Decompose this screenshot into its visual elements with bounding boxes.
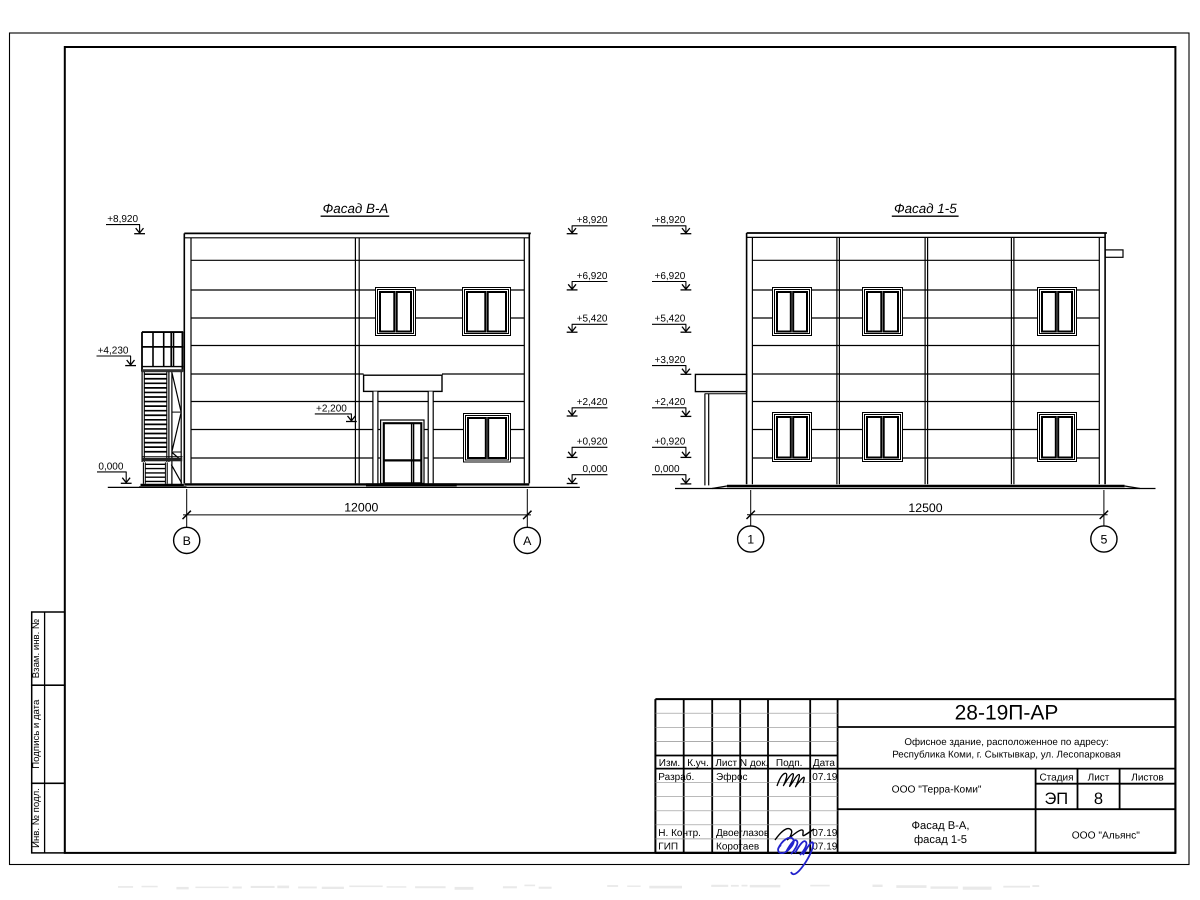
svg-text:Фасад В-А: Фасад В-А [323,201,389,216]
svg-text:1: 1 [747,532,754,546]
svg-text:фасад 1-5: фасад 1-5 [914,834,967,846]
svg-text:Лист: Лист [715,758,737,769]
svg-text:Взам. инв. №: Взам. инв. № [31,619,42,678]
svg-text:07.19: 07.19 [812,828,837,839]
svg-text:+2,200: +2,200 [316,403,347,414]
svg-text:Фасад В-А,: Фасад В-А, [912,820,970,832]
svg-text:+5,420: +5,420 [655,314,686,325]
svg-text:Двоеглазов: Двоеглазов [716,828,769,839]
svg-text:8: 8 [1094,790,1103,808]
svg-text:0,000: 0,000 [582,464,607,475]
svg-text:А: А [523,534,532,548]
svg-text:12000: 12000 [344,501,378,515]
svg-text:Подпись и дата: Подпись и дата [31,699,42,769]
svg-text:+6,920: +6,920 [655,271,686,282]
svg-text:12500: 12500 [908,501,942,515]
svg-text:К.уч.: К.уч. [687,758,709,769]
svg-text:+2,420: +2,420 [655,397,686,408]
svg-text:Изм.: Изм. [659,758,680,769]
svg-text:Эфрос: Эфрос [716,772,748,783]
svg-text:28-19П-АР: 28-19П-АР [955,702,1059,725]
svg-text:+8,920: +8,920 [577,215,608,226]
svg-text:ООО "Альянс": ООО "Альянс" [1072,830,1141,841]
svg-text:+8,920: +8,920 [655,215,686,226]
svg-text:Республика Коми, г. Сыктывкар,: Республика Коми, г. Сыктывкар, ул. Лесоп… [892,749,1121,760]
svg-text:+3,920: +3,920 [655,355,686,366]
svg-text:5: 5 [1100,532,1107,546]
svg-text:Дата: Дата [813,758,836,769]
svg-text:0,000: 0,000 [655,464,680,475]
svg-text:+0,920: +0,920 [577,437,608,448]
svg-text:Подп.: Подп. [776,758,803,769]
svg-text:Фасад 1-5: Фасад 1-5 [894,201,957,216]
svg-text:+5,420: +5,420 [577,314,608,325]
svg-text:N док.: N док. [740,758,769,769]
svg-text:07.19: 07.19 [812,772,837,783]
svg-text:07.19: 07.19 [812,841,837,852]
svg-text:+0,920: +0,920 [655,437,686,448]
svg-text:Лист: Лист [1088,773,1110,784]
svg-text:Коротаев: Коротаев [716,841,759,852]
svg-text:+4,230: +4,230 [98,345,129,356]
svg-text:Листов: Листов [1131,773,1164,784]
svg-text:Инв. № подл.: Инв. № подл. [31,788,42,848]
svg-text:Стадия: Стадия [1039,773,1073,784]
svg-text:0,000: 0,000 [98,461,123,472]
svg-text:ЭП: ЭП [1044,790,1068,808]
svg-text:В: В [183,534,191,548]
svg-text:+6,920: +6,920 [577,271,608,282]
svg-text:Н. Контр.: Н. Контр. [658,828,701,839]
svg-text:ООО "Терра-Коми": ООО "Терра-Коми" [892,784,982,795]
svg-text:ГИП: ГИП [658,841,678,852]
svg-text:+2,420: +2,420 [577,397,608,408]
svg-text:Офисное здание, расположенное: Офисное здание, расположенное по адресу: [904,737,1108,748]
svg-text:Разраб.: Разраб. [658,772,694,783]
svg-text:+8,920: +8,920 [107,214,138,225]
